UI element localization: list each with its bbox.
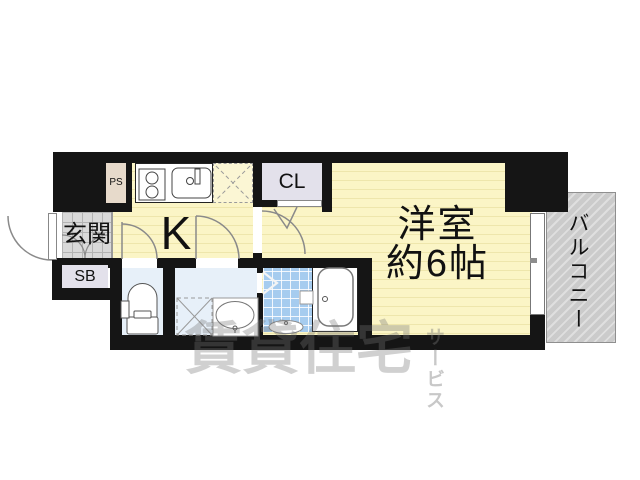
entrance-label-text: 玄関 — [63, 223, 111, 247]
balcony-label: バルコニー — [567, 212, 588, 347]
kitchen-label: K — [150, 209, 202, 257]
watermark-sub: サービス — [424, 327, 443, 407]
sink-icon — [172, 168, 211, 198]
entrance-label: 玄関 — [60, 222, 114, 248]
watermark-main-text: 賃貸住宅 — [185, 317, 413, 381]
kitchen-label-text: K — [161, 210, 192, 256]
western-room-size-label: 約6帖 — [355, 245, 520, 284]
watermark-sub-text: サービス — [423, 327, 444, 411]
balcony-label-text: バルコニー — [566, 212, 589, 332]
stove-icon — [139, 169, 165, 200]
western-room-name: 洋室 — [355, 206, 520, 245]
western-room-door-arc-icon — [262, 207, 305, 254]
floorplan: PS CL SB — [0, 0, 640, 480]
bath-folding-door-icon — [263, 272, 277, 294]
washroom-door-arc-icon — [196, 216, 239, 259]
western-room-label: 洋室 約6帖 — [355, 206, 520, 284]
entrance-door-arc-icon — [8, 216, 52, 260]
fridge-x-icon — [216, 166, 250, 200]
toilet-icon — [121, 284, 158, 335]
bath-shelf-icon — [300, 291, 313, 304]
watermark-main: 賃貸住宅 — [185, 321, 413, 378]
